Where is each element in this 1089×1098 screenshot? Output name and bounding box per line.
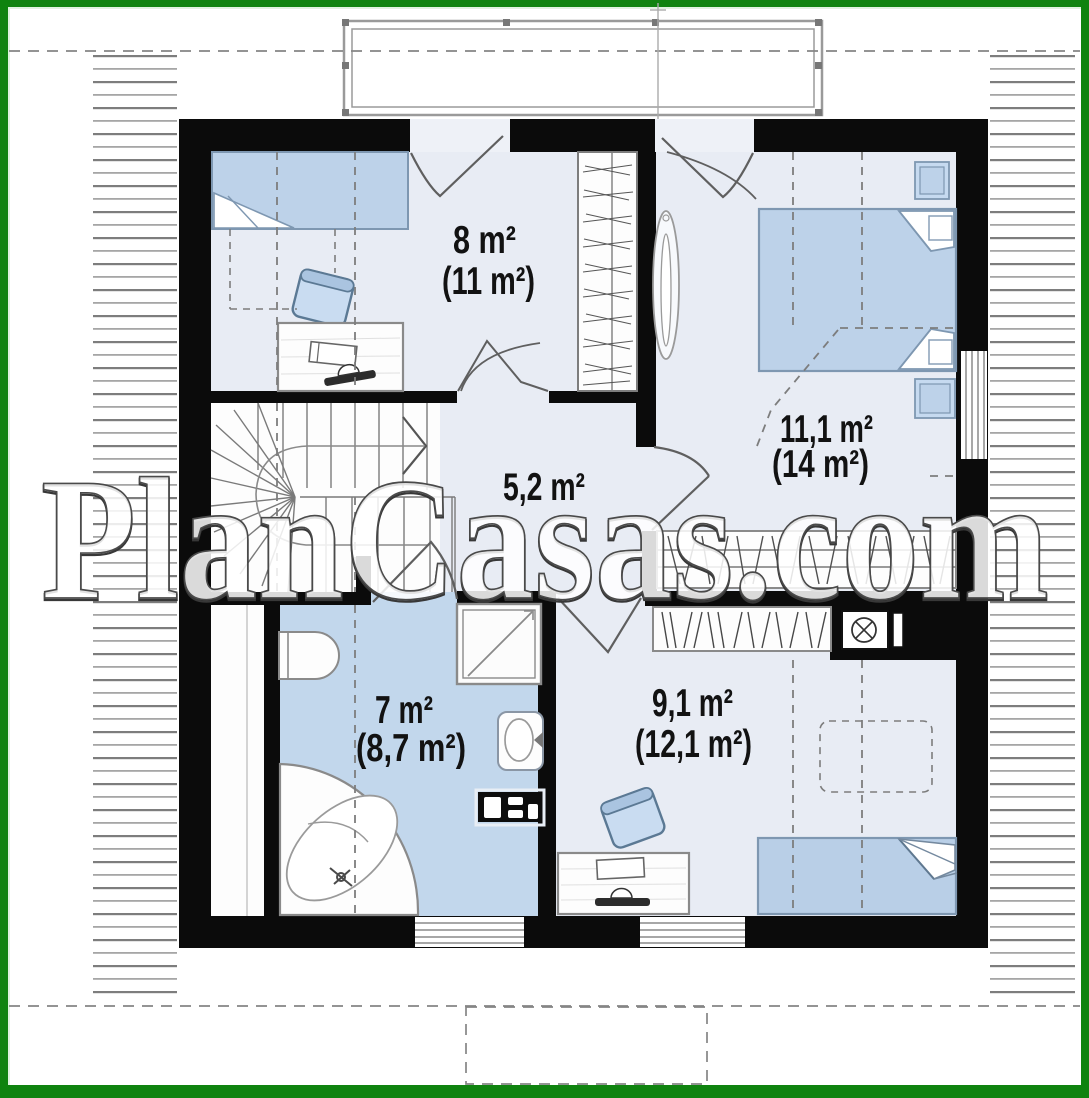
svg-text:(12,1 m²): (12,1 m²)	[635, 723, 752, 766]
svg-text:(8,7 m²): (8,7 m²)	[356, 727, 466, 770]
svg-text:9,1 m²: 9,1 m²	[652, 682, 733, 725]
svg-text:PlanCasas.com: PlanCasas.com	[41, 442, 1049, 636]
svg-text:7 m²: 7 m²	[375, 689, 433, 732]
svg-text:8 m²: 8 m²	[453, 219, 516, 262]
svg-text:(11 m²): (11 m²)	[442, 260, 535, 303]
